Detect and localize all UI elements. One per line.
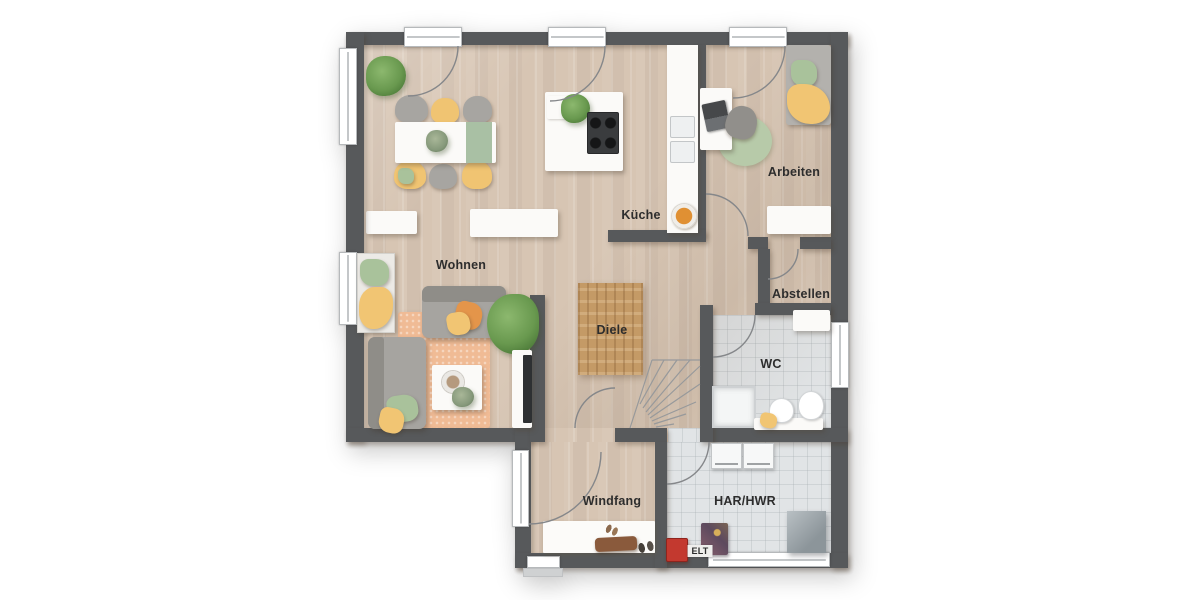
cooktop	[587, 112, 619, 154]
window	[404, 27, 462, 47]
table-centerpiece	[426, 130, 448, 152]
room-label-diele: Diele	[597, 323, 628, 337]
room-label-abstellen: Abstellen	[772, 287, 830, 301]
dining-chair	[431, 98, 459, 124]
floorplan-canvas: Wohnen Küche Arbeiten Abstellen Diele WC…	[0, 0, 1200, 600]
room-label-har-hwr: HAR/HWR	[714, 494, 776, 508]
room-label-elt: ELT	[688, 545, 713, 557]
dining-chair	[462, 161, 492, 189]
window-wc	[831, 322, 849, 388]
dining-chair	[395, 95, 428, 123]
kitchen-sink	[670, 116, 695, 138]
room-label-windfang: Windfang	[583, 494, 641, 508]
wall-wohnen-bottom	[346, 428, 532, 442]
monstera-plant	[487, 294, 539, 354]
tv	[523, 355, 532, 423]
wall-wc-bottom	[709, 428, 848, 442]
toilet	[798, 391, 824, 420]
floorplan: Wohnen Küche Arbeiten Abstellen Diele WC…	[0, 0, 1200, 600]
shoe-bench	[595, 536, 638, 552]
chair-cloth	[398, 168, 414, 184]
window	[729, 27, 787, 47]
entrance-door	[512, 450, 529, 527]
pillow	[360, 259, 389, 286]
fruit-bowl	[671, 203, 697, 229]
room-label-kueche: Küche	[621, 208, 660, 222]
room-label-wc: WC	[760, 357, 781, 371]
wall-arbeiten-bottom-right	[800, 237, 831, 249]
dining-chair	[463, 96, 492, 123]
sideboard	[366, 211, 417, 234]
room-label-wohnen: Wohnen	[436, 258, 486, 272]
wall-diele-bottom	[615, 428, 667, 442]
electrical-panel	[666, 538, 688, 562]
table-runner	[466, 122, 492, 163]
office-cabinet	[767, 206, 831, 234]
sideboard	[470, 209, 558, 237]
door-sill	[527, 556, 560, 568]
washing-machine	[711, 443, 742, 469]
dryer	[743, 443, 774, 469]
pillow	[791, 60, 817, 86]
shower	[712, 386, 756, 428]
dining-chair	[429, 164, 457, 189]
wall-arbeiten-bottom-left	[748, 237, 768, 249]
wc-shelf	[793, 310, 830, 331]
room-label-arbeiten: Arbeiten	[768, 165, 820, 179]
window	[339, 48, 357, 145]
wall-abstellen-left	[758, 249, 770, 307]
water-tank	[787, 511, 826, 553]
entrance-doorstep	[523, 568, 563, 577]
sofa-backrest	[422, 286, 506, 302]
wall-outer-right	[831, 32, 848, 568]
window	[339, 252, 357, 325]
window	[548, 27, 606, 47]
kitchen-sink	[670, 141, 695, 163]
